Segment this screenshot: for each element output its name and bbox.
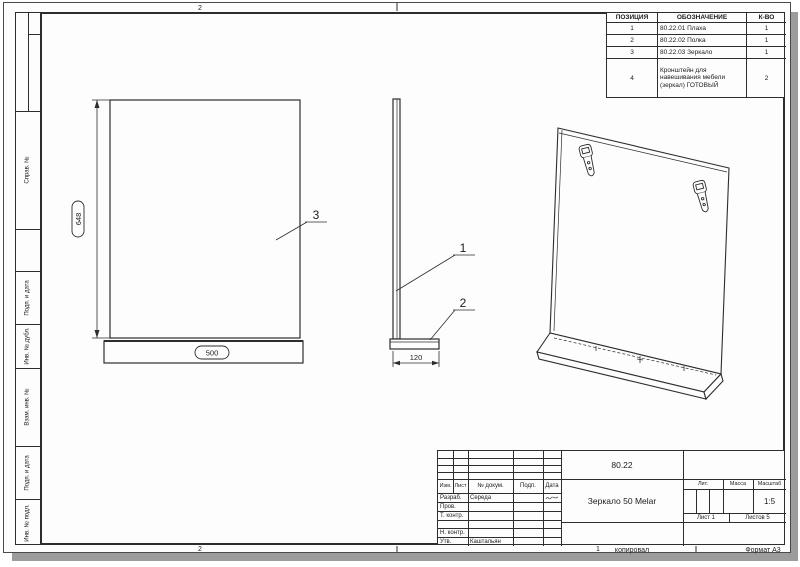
zone-number-bottom-right: 1 — [596, 546, 600, 553]
copied-label: копировал — [615, 547, 649, 554]
zone-number-bottom-left: 2 — [198, 546, 202, 553]
zone-number-top: 2 — [198, 5, 202, 12]
dimension-width-value: 500 — [206, 349, 219, 358]
callout-shelf: 2 — [460, 296, 467, 310]
dimension-depth-value: 120 — [410, 353, 423, 362]
plank-side-outline — [393, 99, 400, 339]
front-view — [72, 100, 327, 363]
format-label: Формат А3 — [745, 547, 780, 554]
arrowhead — [95, 330, 100, 338]
drawing-sheet-canvas: Справ. № Подп. и дата Инв. № дубл. Взам.… — [0, 0, 800, 567]
dimension-height-value: 648 — [74, 213, 83, 226]
isometric-view — [537, 128, 729, 399]
callout-mirror: 3 — [313, 208, 320, 222]
arrowhead — [95, 100, 100, 108]
leader-line — [396, 255, 455, 291]
mirror-front-outline — [110, 100, 300, 338]
arrowhead — [432, 361, 439, 365]
side-view — [390, 99, 475, 367]
arrowhead — [393, 361, 400, 365]
drawing-views: 648 500 120 3 1 2 2 2 1 копировал Формат… — [0, 0, 800, 567]
iso-panel — [550, 128, 729, 374]
shelf-side-outline — [390, 339, 439, 349]
leader-line — [430, 310, 455, 340]
callout-plank: 1 — [460, 241, 467, 255]
